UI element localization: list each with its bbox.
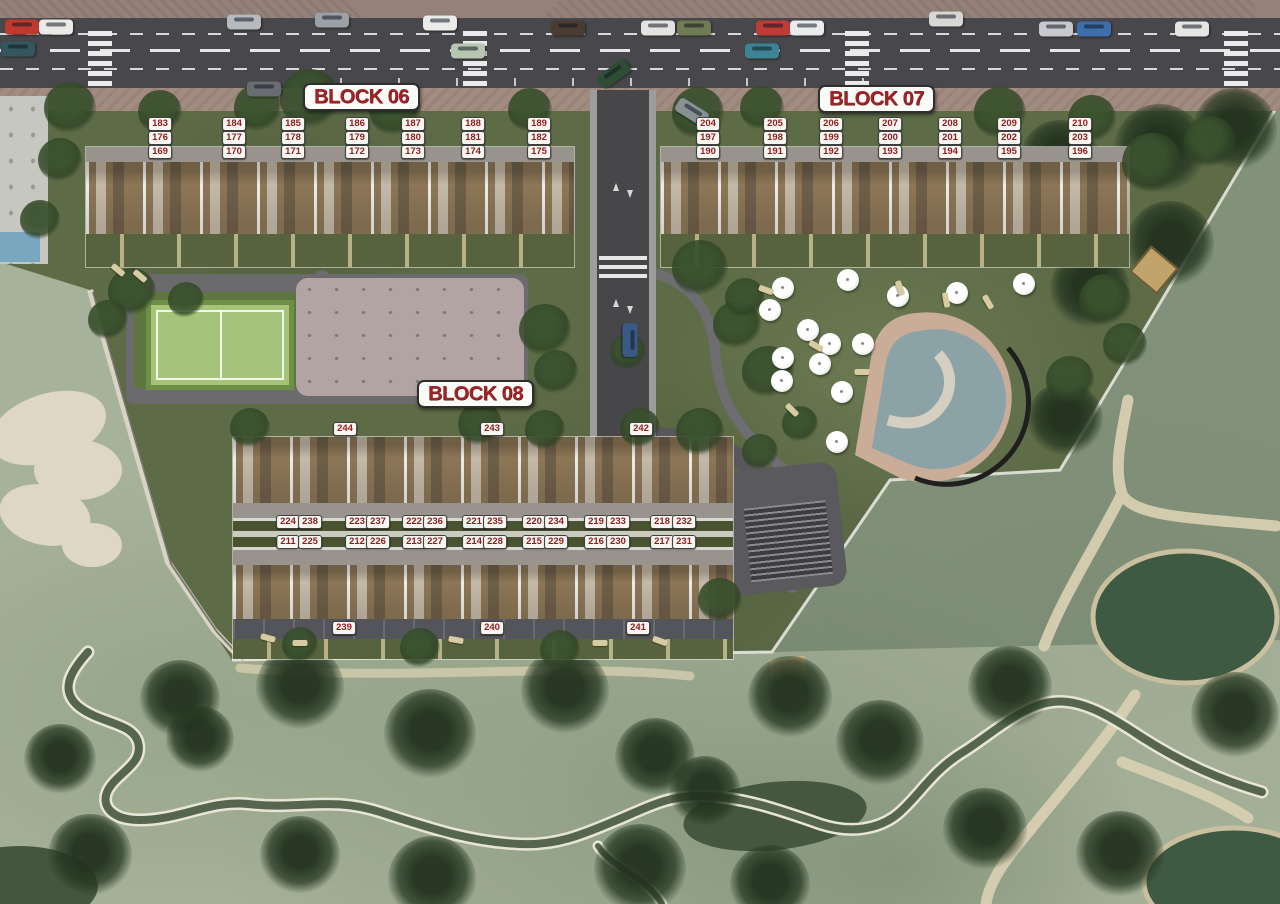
unit-marker-201[interactable]: 201 bbox=[938, 131, 962, 145]
unit-marker-191[interactable]: 191 bbox=[763, 145, 787, 159]
unit-marker-188[interactable]: 188 bbox=[461, 117, 485, 131]
unit-marker-172[interactable]: 172 bbox=[345, 145, 369, 159]
unit-marker-190[interactable]: 190 bbox=[696, 145, 720, 159]
unit-marker-182[interactable]: 182 bbox=[527, 131, 551, 145]
unit-marker-192[interactable]: 192 bbox=[819, 145, 843, 159]
unit-marker-243[interactable]: 243 bbox=[480, 422, 504, 436]
unit-marker-200[interactable]: 200 bbox=[878, 131, 902, 145]
unit-marker-217[interactable]: 217 bbox=[650, 535, 674, 549]
unit-marker-234[interactable]: 234 bbox=[544, 515, 568, 529]
unit-marker-224[interactable]: 224 bbox=[276, 515, 300, 529]
unit-marker-242[interactable]: 242 bbox=[629, 422, 653, 436]
unit-marker-197[interactable]: 197 bbox=[696, 131, 720, 145]
unit-marker-184[interactable]: 184 bbox=[222, 117, 246, 131]
unit-marker-171[interactable]: 171 bbox=[281, 145, 305, 159]
unit-marker-195[interactable]: 195 bbox=[997, 145, 1021, 159]
unit-marker-193[interactable]: 193 bbox=[878, 145, 902, 159]
masterplan-canvas: BLOCK 06 BLOCK 07 BLOCK 08 1831841851861… bbox=[0, 0, 1280, 904]
unit-marker-210[interactable]: 210 bbox=[1068, 117, 1092, 131]
block-label-07: BLOCK 07 bbox=[818, 85, 935, 113]
unit-marker-174[interactable]: 174 bbox=[461, 145, 485, 159]
unit-marker-218[interactable]: 218 bbox=[650, 515, 674, 529]
unit-marker-194[interactable]: 194 bbox=[938, 145, 962, 159]
unit-marker-202[interactable]: 202 bbox=[997, 131, 1021, 145]
unit-marker-196[interactable]: 196 bbox=[1068, 145, 1092, 159]
unit-marker-219[interactable]: 219 bbox=[584, 515, 608, 529]
unit-marker-211[interactable]: 211 bbox=[276, 535, 299, 549]
unit-marker-231[interactable]: 231 bbox=[672, 535, 696, 549]
unit-marker-228[interactable]: 228 bbox=[483, 535, 507, 549]
unit-marker-173[interactable]: 173 bbox=[401, 145, 425, 159]
unit-marker-233[interactable]: 233 bbox=[606, 515, 630, 529]
unit-marker-178[interactable]: 178 bbox=[281, 131, 305, 145]
unit-marker-237[interactable]: 237 bbox=[366, 515, 390, 529]
unit-marker-220[interactable]: 220 bbox=[522, 515, 546, 529]
unit-marker-177[interactable]: 177 bbox=[222, 131, 246, 145]
unit-marker-238[interactable]: 238 bbox=[298, 515, 322, 529]
unit-marker-229[interactable]: 229 bbox=[544, 535, 568, 549]
unit-marker-207[interactable]: 207 bbox=[878, 117, 902, 131]
unit-marker-236[interactable]: 236 bbox=[423, 515, 447, 529]
unit-marker-179[interactable]: 179 bbox=[345, 131, 369, 145]
unit-marker-230[interactable]: 230 bbox=[606, 535, 630, 549]
unit-marker-169[interactable]: 169 bbox=[148, 145, 172, 159]
unit-marker-203[interactable]: 203 bbox=[1068, 131, 1092, 145]
unit-marker-180[interactable]: 180 bbox=[401, 131, 425, 145]
unit-marker-187[interactable]: 187 bbox=[401, 117, 425, 131]
unit-marker-241[interactable]: 241 bbox=[626, 621, 650, 635]
unit-marker-209[interactable]: 209 bbox=[997, 117, 1021, 131]
unit-marker-216[interactable]: 216 bbox=[584, 535, 608, 549]
block-label-08: BLOCK 08 bbox=[417, 380, 534, 408]
markers-layer: BLOCK 06 BLOCK 07 BLOCK 08 1831841851861… bbox=[0, 0, 1280, 904]
unit-marker-206[interactable]: 206 bbox=[819, 117, 843, 131]
unit-marker-204[interactable]: 204 bbox=[696, 117, 720, 131]
unit-marker-183[interactable]: 183 bbox=[148, 117, 172, 131]
unit-marker-227[interactable]: 227 bbox=[423, 535, 447, 549]
unit-marker-199[interactable]: 199 bbox=[819, 131, 843, 145]
unit-marker-239[interactable]: 239 bbox=[332, 621, 356, 635]
unit-marker-181[interactable]: 181 bbox=[461, 131, 485, 145]
unit-marker-232[interactable]: 232 bbox=[672, 515, 696, 529]
block-label-06: BLOCK 06 bbox=[303, 83, 420, 111]
unit-marker-205[interactable]: 205 bbox=[763, 117, 787, 131]
unit-marker-176[interactable]: 176 bbox=[148, 131, 172, 145]
unit-marker-208[interactable]: 208 bbox=[938, 117, 962, 131]
unit-marker-225[interactable]: 225 bbox=[298, 535, 322, 549]
unit-marker-244[interactable]: 244 bbox=[333, 422, 357, 436]
unit-marker-198[interactable]: 198 bbox=[763, 131, 787, 145]
unit-marker-189[interactable]: 189 bbox=[527, 117, 551, 131]
unit-marker-226[interactable]: 226 bbox=[366, 535, 390, 549]
unit-marker-170[interactable]: 170 bbox=[222, 145, 246, 159]
unit-marker-175[interactable]: 175 bbox=[527, 145, 551, 159]
unit-marker-240[interactable]: 240 bbox=[480, 621, 504, 635]
unit-marker-185[interactable]: 185 bbox=[281, 117, 305, 131]
unit-marker-215[interactable]: 215 bbox=[522, 535, 546, 549]
unit-marker-186[interactable]: 186 bbox=[345, 117, 369, 131]
unit-marker-235[interactable]: 235 bbox=[483, 515, 507, 529]
